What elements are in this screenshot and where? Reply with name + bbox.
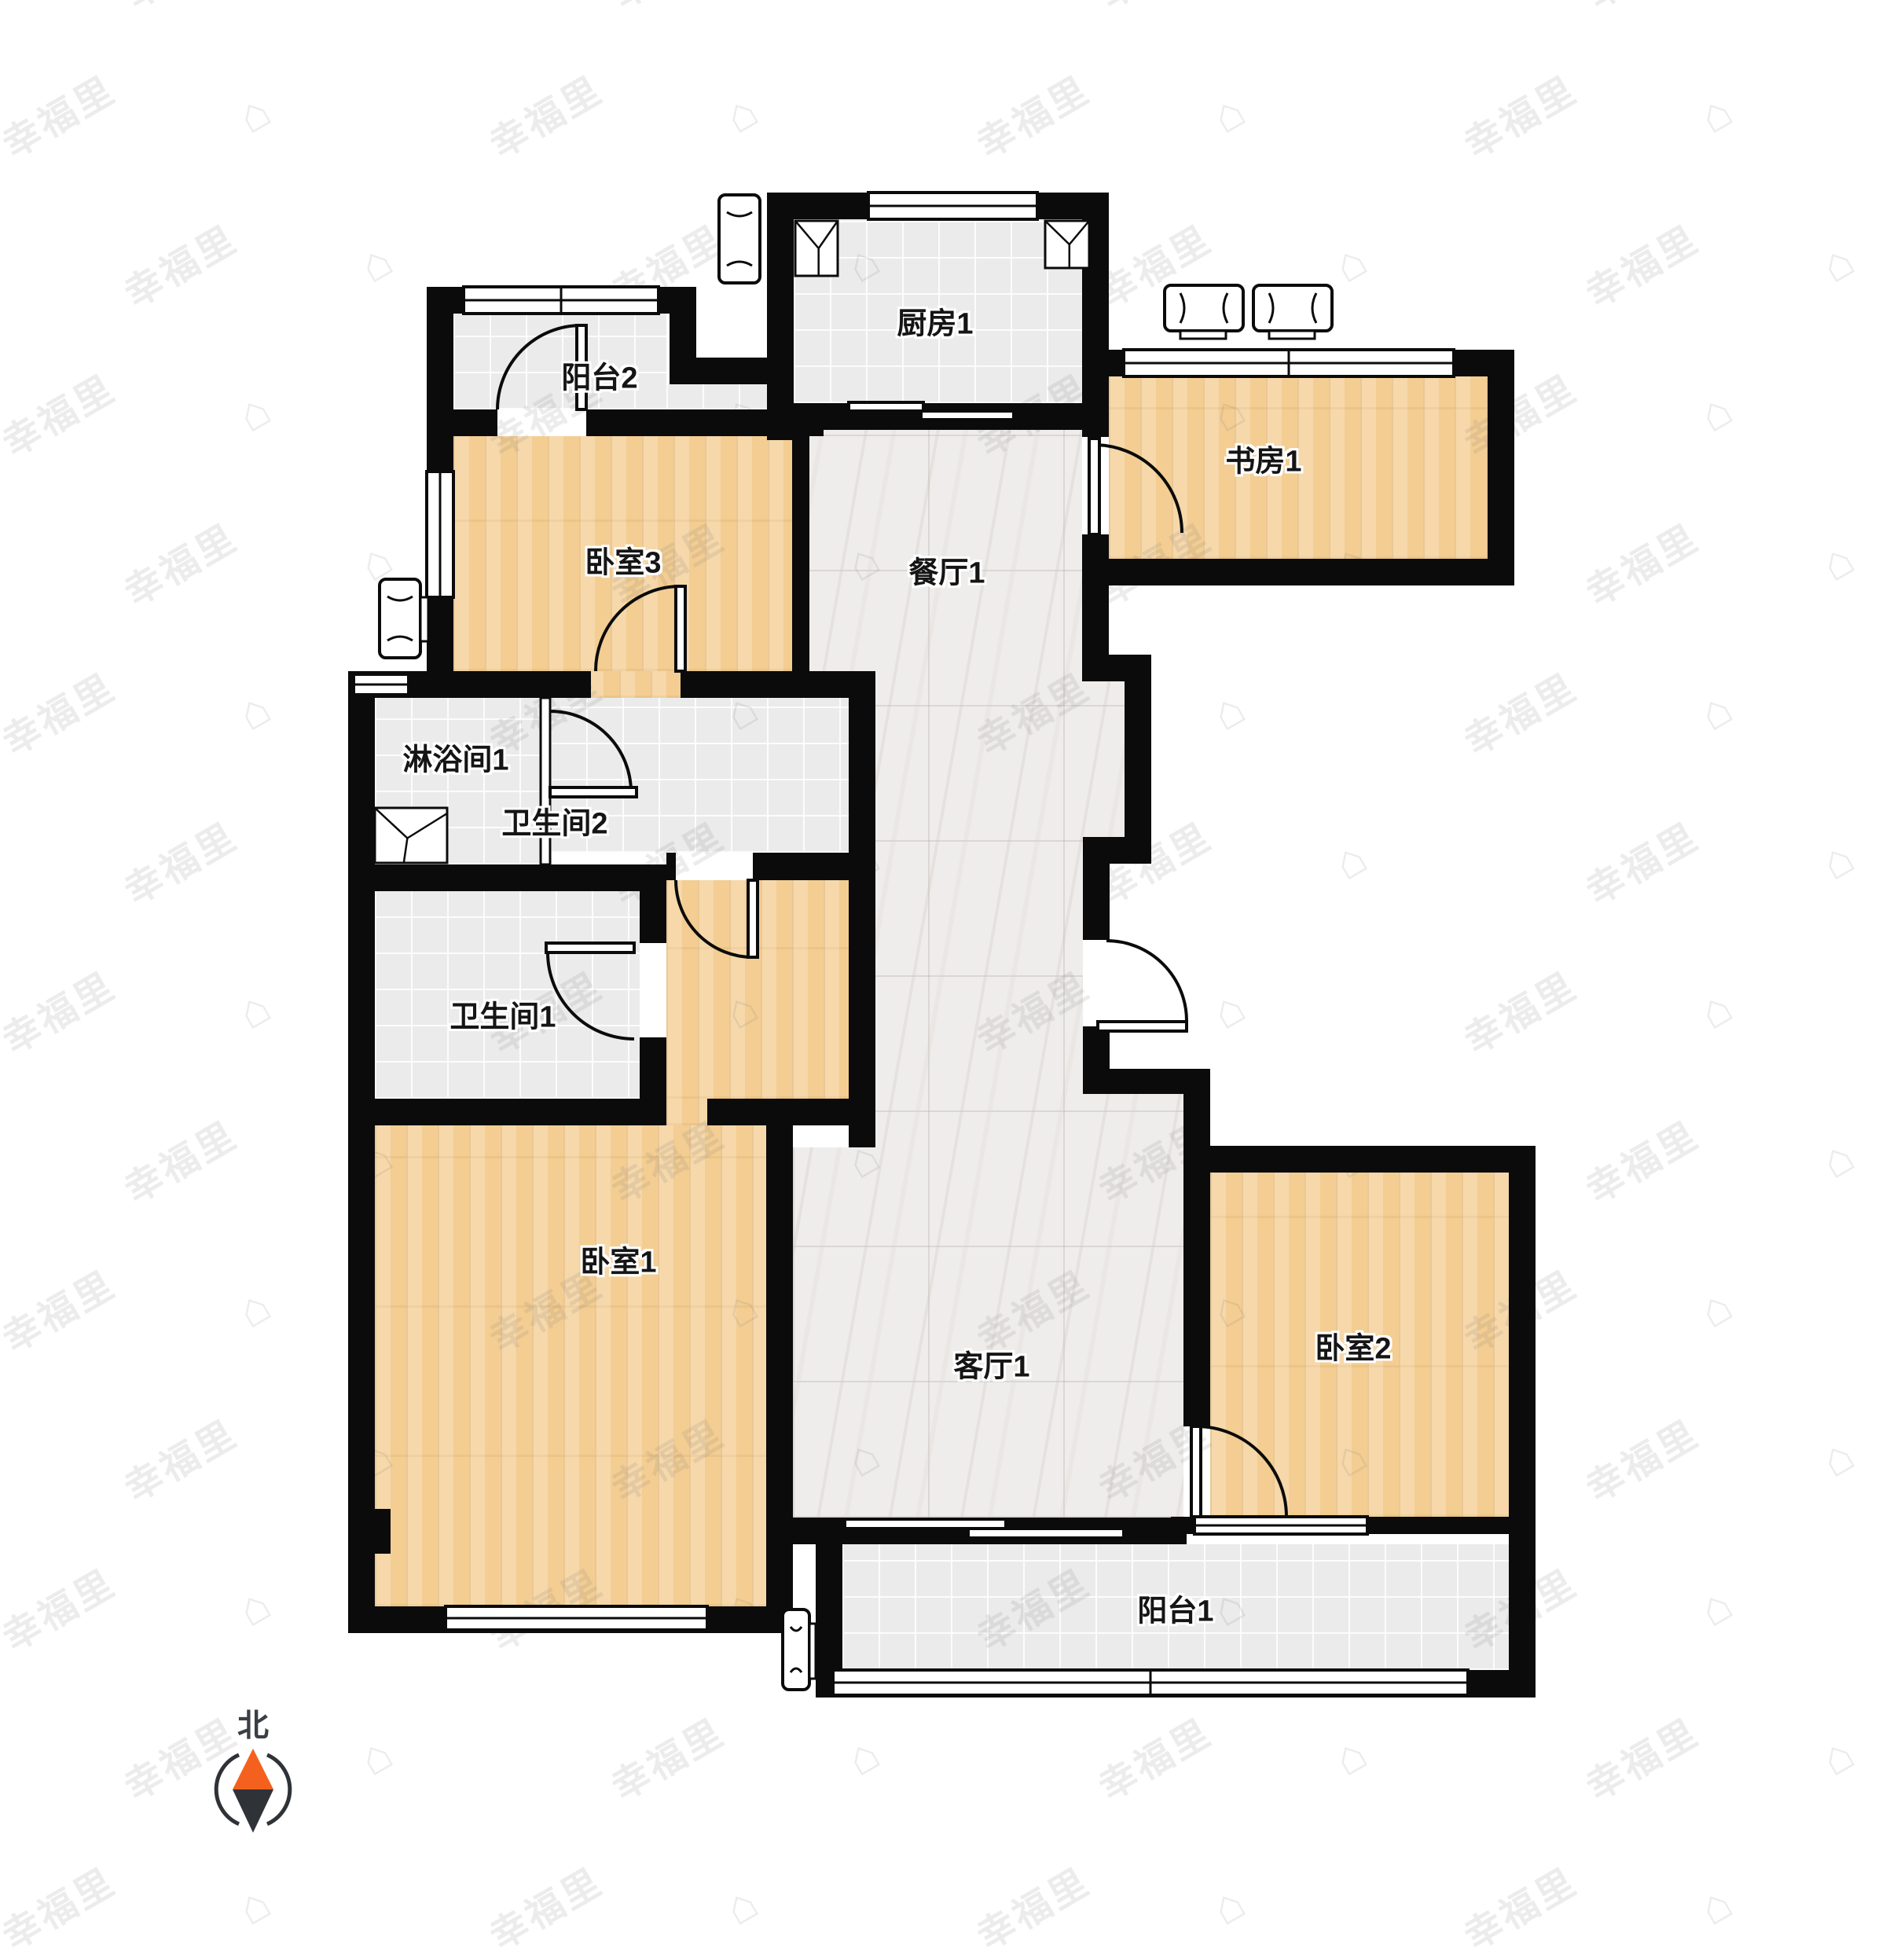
ac-bracket: [809, 1624, 816, 1679]
wall-segment: [753, 853, 875, 880]
wall-segment: [640, 1037, 666, 1099]
suite-door-leaf: [748, 880, 758, 957]
wall-segment: [1083, 1026, 1110, 1072]
bedroom2-door-arc: [1196, 1426, 1286, 1517]
entry-door-leaf: [1098, 1022, 1187, 1031]
bedroom2-door-leaf: [1191, 1426, 1201, 1517]
wall-segment: [767, 193, 794, 440]
room-label-balcony1: 阳台1: [1137, 1587, 1213, 1630]
wall-segment: [427, 409, 497, 436]
wall-segment: [348, 671, 375, 1633]
wall-segment: [348, 864, 666, 891]
wall-segment: [666, 853, 676, 880]
bath2-door-arc: [550, 711, 631, 792]
floor-plan: ⌂幸福里⌂幸福里⌂幸福里⌂幸福里⌂幸福里⌂幸福里⌂幸福里⌂幸福里⌂幸福里⌂幸福里…: [0, 0, 1886, 1886]
study1-door-arc: [1094, 445, 1182, 533]
wall-segment: [586, 409, 824, 436]
plan-overlay: [0, 0, 1886, 1886]
wall-segment: [1183, 1146, 1536, 1173]
room-label-dining1: 餐厅1: [908, 549, 985, 592]
wall-segment: [375, 1509, 391, 1554]
wall-segment: [1509, 1146, 1536, 1543]
room-label-bedroom1: 卧室1: [580, 1238, 656, 1281]
wall-segment: [707, 1099, 849, 1125]
ac-bracket: [420, 597, 428, 641]
study1-door-leaf: [1089, 439, 1099, 534]
room-label-shower1: 淋浴间1: [402, 736, 508, 779]
wall-segment: [792, 409, 809, 698]
bath1-door-leaf: [546, 943, 634, 952]
sliding-door-panel: [921, 411, 1014, 420]
ac-unit: [380, 579, 420, 658]
bedroom3-door-leaf: [676, 586, 685, 671]
ac-unit: [719, 195, 760, 283]
north-label: 北: [237, 1700, 269, 1745]
ac-bracket: [1269, 331, 1315, 339]
compass-south-arrow: [233, 1789, 273, 1833]
wall-segment: [1082, 559, 1514, 585]
wall-segment: [1082, 655, 1151, 681]
wall-segment: [640, 891, 666, 943]
room-label-living1: 客厅1: [953, 1342, 1029, 1386]
wall-segment: [766, 1099, 793, 1633]
wall-segment: [1125, 681, 1151, 864]
room-label-study1: 书房1: [1225, 437, 1301, 480]
room-label-balcony2: 阳台2: [561, 354, 637, 397]
wall-segment: [849, 853, 875, 1147]
wall-segment: [681, 671, 875, 698]
wall-segment: [1082, 534, 1109, 655]
room-label-bedroom2: 卧室2: [1315, 1324, 1391, 1367]
room-label-bath2: 卫生间2: [501, 799, 607, 842]
wall-segment: [1083, 864, 1110, 940]
entry-door-arc: [1106, 941, 1187, 1021]
wall-segment: [1183, 1173, 1210, 1426]
ac-unit: [1253, 285, 1332, 331]
bedroom3-door-arc: [596, 586, 681, 671]
ac-unit: [1165, 285, 1243, 331]
room-label-bedroom3: 卧室3: [585, 538, 661, 582]
ac-bracket: [1180, 331, 1226, 339]
ac-unit: [783, 1609, 809, 1690]
bath1-door-arc: [548, 952, 634, 1039]
wall-segment: [348, 1099, 666, 1125]
wall-segment: [816, 1518, 842, 1670]
room-label-kitchen: 厨房1: [897, 299, 973, 343]
wall-segment: [1488, 350, 1514, 585]
sliding-door-panel: [968, 1529, 1124, 1538]
room-label-bath1: 卫生间1: [449, 993, 556, 1036]
suite-door-arc: [676, 880, 753, 957]
wall-segment: [1083, 837, 1151, 864]
wall-segment: [427, 671, 591, 698]
sliding-door-panel: [849, 402, 923, 411]
wall-segment: [1083, 1069, 1210, 1094]
bath2-door-leaf: [550, 787, 637, 797]
wall-segment: [849, 698, 875, 853]
